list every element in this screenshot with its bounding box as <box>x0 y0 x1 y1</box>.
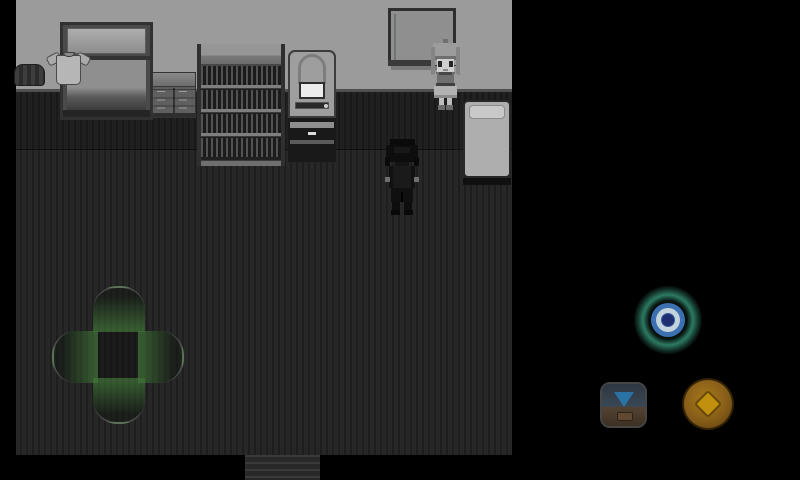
tshirt <box>56 55 81 85</box>
bookshelf-bottom <box>201 160 281 166</box>
desk-base-band <box>290 140 334 144</box>
bookshelf-top <box>201 44 281 66</box>
desk-base-band <box>290 122 334 128</box>
dpad-down-button[interactable] <box>93 378 145 424</box>
npc-girl-sprite[interactable] <box>429 37 462 111</box>
book-row <box>201 138 281 157</box>
chest-button[interactable] <box>600 382 647 428</box>
dpad-center <box>98 332 138 378</box>
chair-back <box>298 54 326 84</box>
computer-screen <box>299 82 325 99</box>
dpad-right-button[interactable] <box>138 331 184 383</box>
book-row <box>201 114 281 133</box>
dpad-left-button[interactable] <box>52 331 98 383</box>
diamond-icon <box>694 390 722 418</box>
dresser-top <box>153 73 195 87</box>
virtual-dpad[interactable] <box>52 286 184 424</box>
target-center-dot <box>661 313 675 327</box>
wardrobe-bottom <box>63 110 150 117</box>
desk-base-tick <box>308 132 316 135</box>
target-rings-icon <box>651 303 685 337</box>
computer-desk[interactable] <box>288 50 336 162</box>
doormat-exit[interactable] <box>245 455 320 480</box>
action-button[interactable] <box>634 286 702 354</box>
target-inner-ring <box>656 308 680 332</box>
clothes-pile <box>14 64 45 86</box>
dresser[interactable] <box>152 72 196 118</box>
game-screen <box>0 0 800 480</box>
dresser-base <box>153 113 195 117</box>
shelf-board <box>201 85 281 89</box>
down-arrow-icon <box>614 392 634 407</box>
shelf-board <box>201 133 281 137</box>
window-pane-right <box>394 14 396 64</box>
book-row <box>201 66 281 85</box>
dresser-handles <box>153 88 195 113</box>
bed-shadow <box>463 178 511 185</box>
wardrobe-top-panel <box>67 28 146 54</box>
player-sprite[interactable] <box>383 137 421 216</box>
shelf-board <box>201 109 281 113</box>
chest-icon <box>617 412 633 421</box>
bed[interactable] <box>463 100 511 178</box>
bookshelf[interactable] <box>197 44 285 166</box>
power-light <box>324 104 328 108</box>
menu-button[interactable] <box>682 378 734 430</box>
book-row <box>201 90 281 109</box>
dpad-up-button[interactable] <box>93 286 145 332</box>
pillow <box>469 105 505 119</box>
